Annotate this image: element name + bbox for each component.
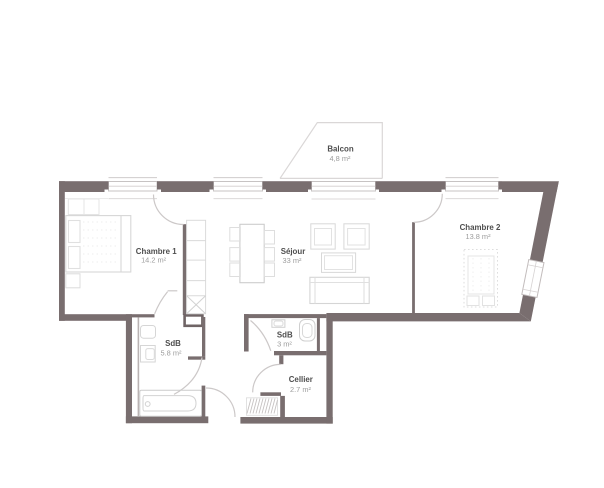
svg-text:Séjour: Séjour	[281, 247, 306, 256]
svg-text:13.8 m²: 13.8 m²	[465, 232, 491, 241]
svg-text:Chambre 2: Chambre 2	[460, 223, 501, 232]
svg-text:5.8 m²: 5.8 m²	[161, 349, 182, 358]
svg-text:Cellier: Cellier	[289, 375, 313, 384]
svg-text:33 m²: 33 m²	[283, 256, 302, 265]
svg-text:4,8 m²: 4,8 m²	[330, 154, 351, 163]
svg-text:Balcon: Balcon	[327, 145, 353, 154]
svg-text:3 m²: 3 m²	[277, 339, 292, 348]
svg-text:SdB: SdB	[277, 331, 293, 340]
svg-text:2.7 m²: 2.7 m²	[290, 385, 311, 394]
svg-text:14.2 m²: 14.2 m²	[141, 255, 167, 264]
svg-text:SdB: SdB	[165, 339, 181, 348]
